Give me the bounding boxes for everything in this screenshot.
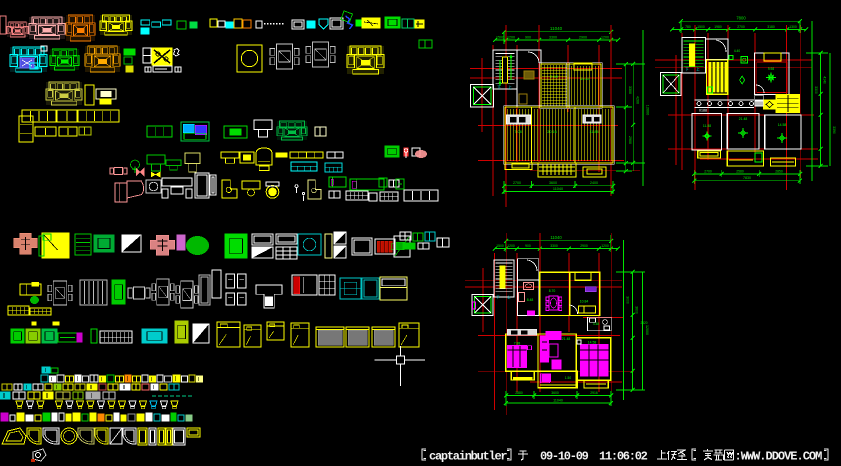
svg-text:3300: 3300 <box>628 86 632 94</box>
svg-text:2400: 2400 <box>590 181 598 185</box>
svg-text:上: 上 <box>508 85 512 90</box>
svg-text::WWW.DDOVE.COM: :WWW.DDOVE.COM <box>735 450 823 464</box>
svg-text:2580: 2580 <box>736 169 744 173</box>
svg-text:11040: 11040 <box>553 187 563 191</box>
svg-text:3180: 3180 <box>767 25 775 29</box>
svg-text:7.08: 7.08 <box>514 130 521 134</box>
svg-text:1200: 1200 <box>507 244 515 248</box>
svg-text:3000: 3000 <box>626 296 630 304</box>
svg-text:12000: 12000 <box>646 105 650 116</box>
svg-text:2.48: 2.48 <box>550 75 557 79</box>
svg-text:10.84: 10.84 <box>580 77 590 81</box>
svg-text:10.84: 10.84 <box>580 300 589 304</box>
svg-text:11040: 11040 <box>553 399 563 403</box>
svg-text:3300: 3300 <box>550 244 558 248</box>
svg-text:0188: 0188 <box>699 109 707 113</box>
svg-text:21.48: 21.48 <box>562 337 571 341</box>
svg-text:1200: 1200 <box>601 36 609 40</box>
svg-text:2700: 2700 <box>513 181 521 185</box>
svg-text:11.88: 11.88 <box>589 130 598 134</box>
svg-text:21.48: 21.48 <box>739 117 748 121</box>
svg-text:1500: 1500 <box>496 36 504 40</box>
svg-text:2900: 2900 <box>580 244 588 248</box>
svg-text:1.50: 1.50 <box>565 376 571 380</box>
svg-text:4140: 4140 <box>823 76 827 84</box>
svg-text:11.88: 11.88 <box>703 124 711 128</box>
svg-text:3390: 3390 <box>832 126 836 134</box>
svg-text:09-10-09: 09-10-09 <box>540 450 589 464</box>
svg-text:8.48: 8.48 <box>527 298 534 302</box>
svg-text:900: 900 <box>525 244 531 248</box>
svg-text:4.40: 4.40 <box>734 49 740 53</box>
svg-text:captainbutler: captainbutler <box>429 450 507 464</box>
svg-text:3600: 3600 <box>635 306 639 314</box>
svg-text:12000: 12000 <box>645 325 649 335</box>
svg-text:下: 下 <box>497 86 501 90</box>
svg-text:2520: 2520 <box>640 321 647 325</box>
svg-text:2850: 2850 <box>775 169 783 173</box>
svg-text:2880: 2880 <box>515 391 523 395</box>
svg-text:3600: 3600 <box>551 391 559 395</box>
svg-text:7800: 7800 <box>736 16 746 21</box>
svg-text:14.58: 14.58 <box>778 123 787 127</box>
svg-text:1980: 1980 <box>714 25 722 29</box>
svg-text:4200: 4200 <box>636 96 640 104</box>
svg-text:9.98: 9.98 <box>768 67 774 71</box>
svg-text:11040: 11040 <box>550 26 563 31</box>
svg-text:3300: 3300 <box>814 86 818 94</box>
svg-text:20.16: 20.16 <box>547 130 557 134</box>
svg-text:2900: 2900 <box>628 136 632 144</box>
svg-text:900: 900 <box>525 36 531 40</box>
svg-text:1500: 1500 <box>496 244 504 248</box>
svg-text:7.88: 7.88 <box>514 342 521 346</box>
svg-text:8.70: 8.70 <box>549 289 556 293</box>
svg-text:1300: 1300 <box>789 25 797 29</box>
svg-text:11040: 11040 <box>550 235 562 240</box>
svg-text:11:06:02: 11:06:02 <box>599 450 648 464</box>
svg-text:1200: 1200 <box>507 36 515 40</box>
svg-text:3300: 3300 <box>549 36 557 40</box>
svg-text:1200: 1200 <box>601 244 609 248</box>
svg-text:7830: 7830 <box>743 176 751 180</box>
svg-text:780: 780 <box>685 25 691 29</box>
svg-text:2700: 2700 <box>737 25 745 29</box>
svg-text:1500: 1500 <box>697 25 705 29</box>
svg-text:2916: 2916 <box>590 391 598 395</box>
svg-text:2700: 2700 <box>704 169 712 173</box>
svg-text:2900: 2900 <box>579 36 587 40</box>
svg-text:3600: 3600 <box>549 181 557 185</box>
